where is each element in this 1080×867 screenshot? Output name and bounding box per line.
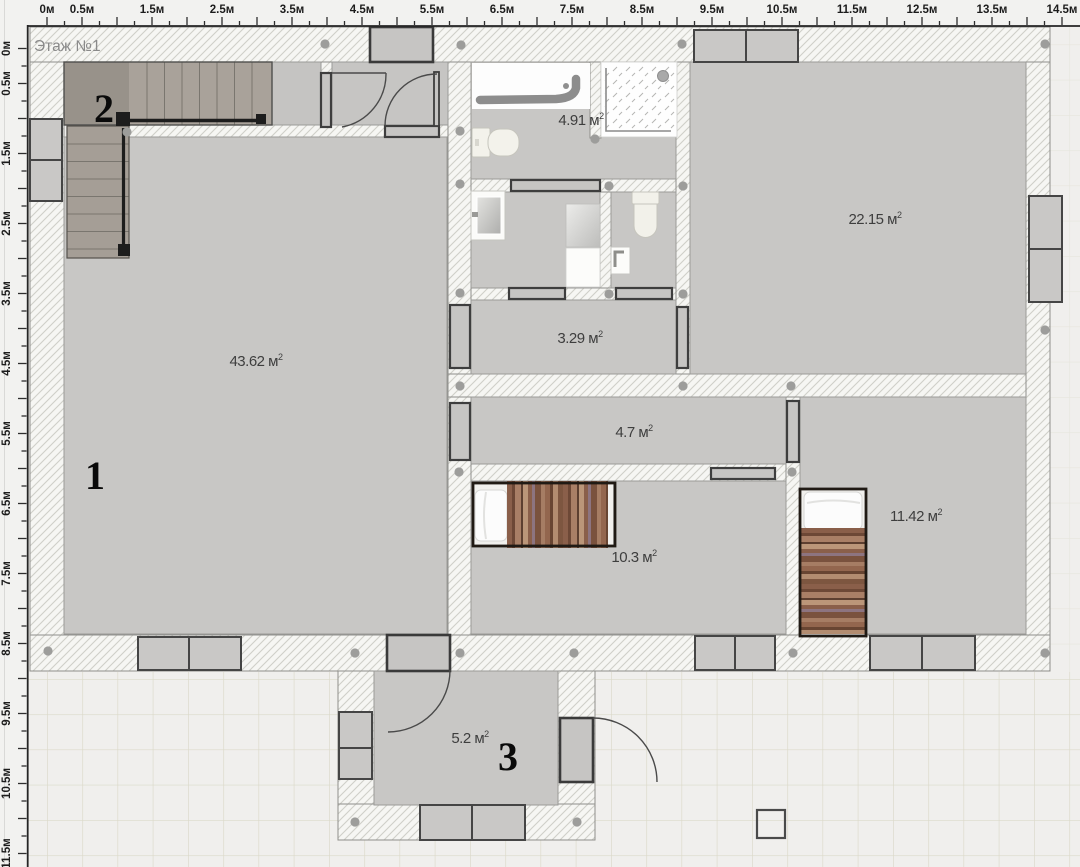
svg-text:1.5м: 1.5м [1,141,13,166]
svg-text:1: 1 [85,453,105,498]
svg-text:1.5м: 1.5м [140,4,165,16]
svg-text:3.29 м2: 3.29 м2 [557,329,603,347]
svg-text:4.7 м2: 4.7 м2 [615,423,653,441]
svg-text:5.2 м2: 5.2 м2 [451,729,489,747]
svg-text:11.42 м2: 11.42 м2 [890,507,942,525]
svg-text:5.5м: 5.5м [420,4,445,16]
svg-text:11.5м: 11.5м [1,838,13,867]
svg-text:0м: 0м [40,4,55,16]
svg-text:4.91 м2: 4.91 м2 [558,111,604,129]
svg-text:4.5м: 4.5м [350,4,375,16]
svg-text:2.5м: 2.5м [210,4,235,16]
svg-text:8.5м: 8.5м [630,4,655,16]
svg-text:4.5м: 4.5м [1,351,13,376]
svg-text:10.3 м2: 10.3 м2 [611,548,657,566]
svg-text:3.5м: 3.5м [280,4,305,16]
svg-text:2: 2 [94,86,114,131]
svg-text:7.5м: 7.5м [560,4,585,16]
svg-text:0.5м: 0.5м [70,4,95,16]
svg-text:8.5м: 8.5м [1,631,13,656]
svg-text:13.5м: 13.5м [977,4,1008,16]
svg-text:3: 3 [498,734,518,779]
svg-text:2.5м: 2.5м [1,211,13,236]
svg-text:11.5м: 11.5м [837,4,867,16]
svg-text:43.62 м2: 43.62 м2 [229,352,283,370]
svg-text:10.5м: 10.5м [767,4,798,16]
svg-text:22.15 м2: 22.15 м2 [848,210,902,228]
svg-text:6.5м: 6.5м [490,4,515,16]
svg-text:3.5м: 3.5м [1,281,13,306]
svg-text:Этаж №1: Этаж №1 [34,38,101,55]
svg-text:12.5м: 12.5м [907,4,938,16]
svg-text:5.5м: 5.5м [1,421,13,446]
svg-text:9.5м: 9.5м [700,4,725,16]
svg-text:6.5м: 6.5м [1,491,13,516]
svg-text:0м: 0м [1,41,13,56]
svg-text:14.5м: 14.5м [1047,4,1078,16]
svg-text:9.5м: 9.5м [1,701,13,726]
svg-text:10.5м: 10.5м [1,768,13,799]
svg-text:7.5м: 7.5м [1,561,13,586]
svg-text:0.5м: 0.5м [1,71,13,96]
